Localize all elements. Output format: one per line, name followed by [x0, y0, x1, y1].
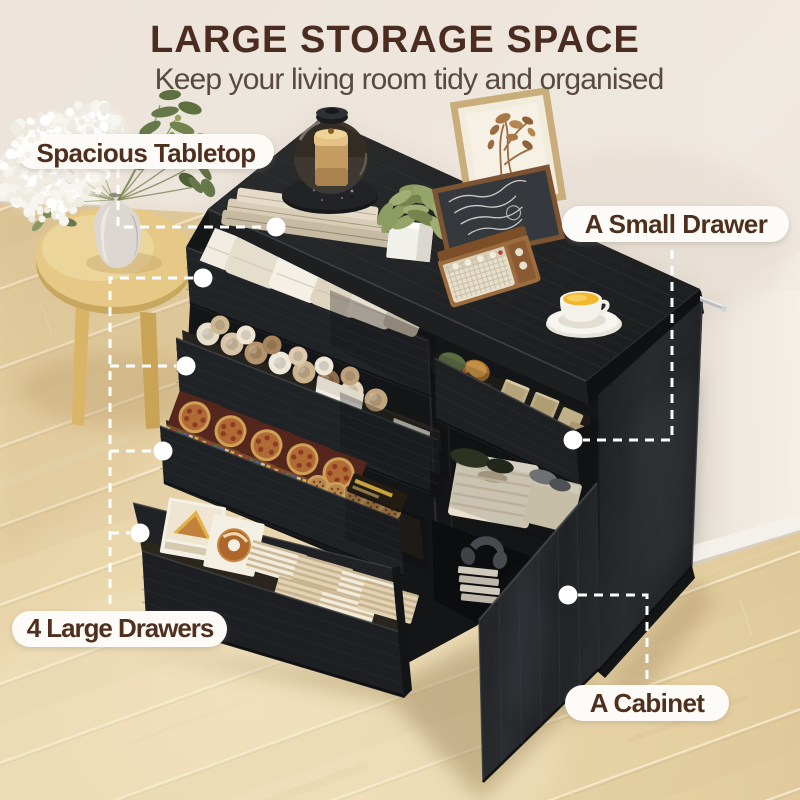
svg-text:4 Large Drawers: 4 Large Drawers: [27, 613, 214, 643]
svg-text:Keep your living room tidy and: Keep your living room tidy and organised: [155, 63, 664, 96]
svg-text:LARGE STORAGE SPACE: LARGE STORAGE SPACE: [150, 19, 640, 61]
svg-text:Spacious Tabletop: Spacious Tabletop: [36, 138, 255, 168]
svg-text:A Small Drawer: A Small Drawer: [585, 209, 768, 239]
svg-text:A Cabinet: A Cabinet: [590, 688, 706, 718]
